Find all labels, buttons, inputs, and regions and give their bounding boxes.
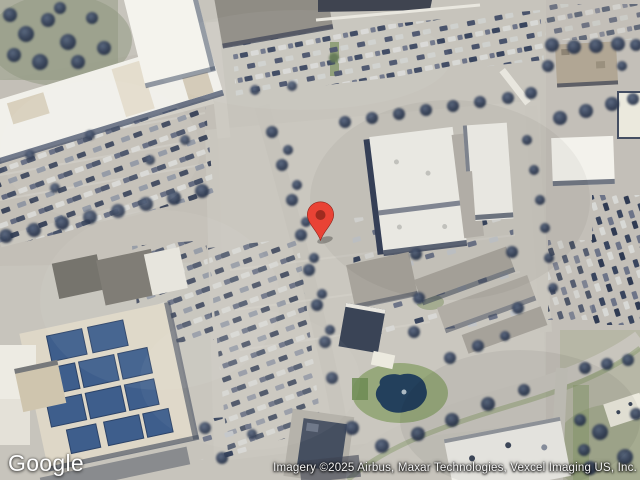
- map-viewport: Google Imagery ©2025 Airbus, Maxar Techn…: [0, 0, 640, 480]
- imagery-attribution: Imagery ©2025 Airbus, Maxar Technologies…: [273, 462, 637, 474]
- fountain: [402, 390, 407, 395]
- google-logo[interactable]: Google: [8, 450, 84, 477]
- tan-office-roof: [555, 41, 618, 87]
- map-pin-dot: [316, 210, 326, 220]
- map-pin-body: [307, 202, 333, 241]
- map-pin[interactable]: [306, 201, 335, 241]
